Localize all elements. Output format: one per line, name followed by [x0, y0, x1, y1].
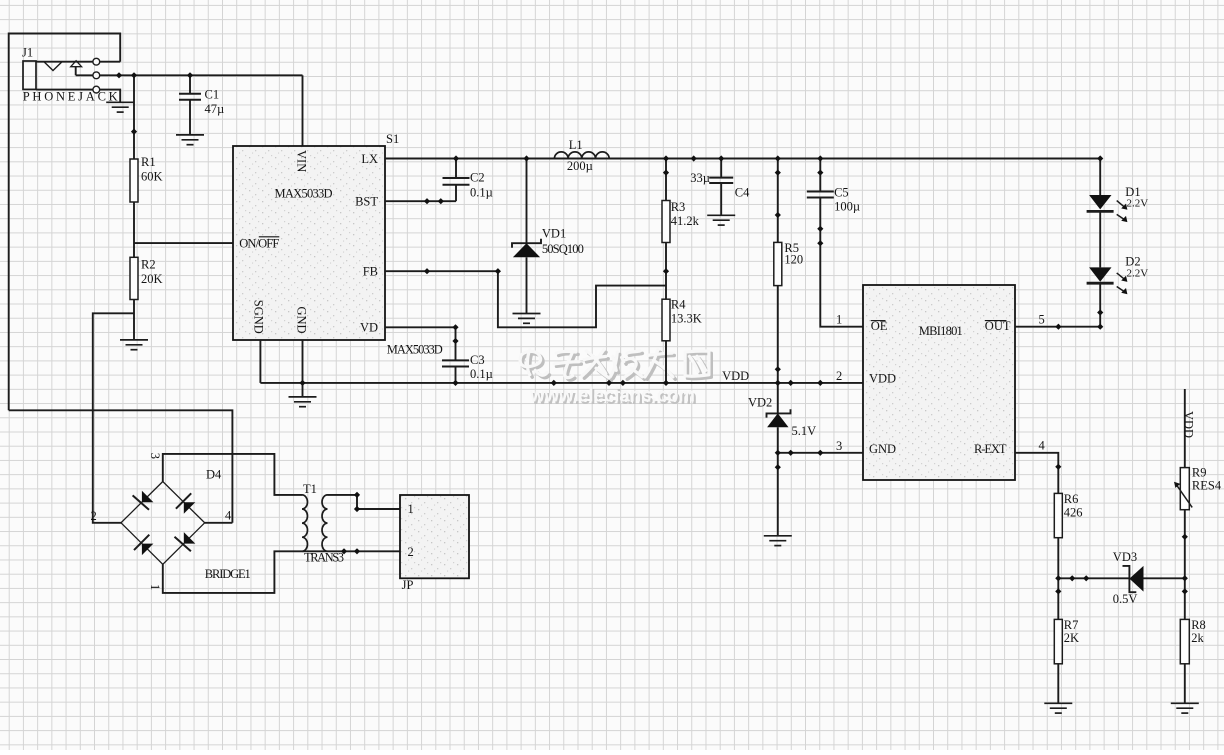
svg-text:120: 120 [784, 253, 803, 267]
svg-text:41.2k: 41.2k [671, 214, 700, 228]
svg-text:MAX5033D: MAX5033D [275, 187, 333, 201]
svg-text:60K: 60K [141, 169, 163, 183]
svg-text:0.5V: 0.5V [1113, 592, 1138, 606]
svg-text:GND: GND [869, 442, 896, 456]
svg-text:C5: C5 [834, 185, 849, 199]
svg-text:JP: JP [402, 578, 414, 592]
svg-text:0.1µ: 0.1µ [470, 186, 493, 200]
svg-text:S1: S1 [386, 132, 399, 146]
svg-text:2: 2 [836, 369, 842, 383]
svg-text:TRANS3: TRANS3 [304, 550, 344, 564]
svg-text:13.3K: 13.3K [671, 312, 702, 326]
svg-text:R9: R9 [1192, 465, 1207, 479]
svg-text:T1: T1 [303, 482, 317, 496]
svg-text:4: 4 [1039, 439, 1046, 453]
svg-text:1: 1 [408, 502, 414, 516]
svg-text:MBI1801: MBI1801 [919, 324, 963, 338]
svg-text:D4: D4 [206, 467, 222, 481]
svg-text:RES4: RES4 [1192, 479, 1222, 493]
svg-text:VIN: VIN [295, 150, 309, 172]
svg-text:VD3: VD3 [1113, 550, 1137, 564]
svg-text:R8: R8 [1191, 618, 1206, 632]
svg-text:C3: C3 [470, 353, 485, 367]
svg-text:C2: C2 [470, 171, 485, 185]
svg-text:C1: C1 [205, 88, 220, 102]
svg-text:R6: R6 [1064, 492, 1079, 506]
svg-text:VD2: VD2 [748, 396, 772, 410]
svg-text:OUT: OUT [985, 319, 1011, 333]
svg-text:R4: R4 [671, 297, 686, 311]
svg-text:3: 3 [836, 439, 842, 453]
svg-text:J1: J1 [22, 46, 33, 60]
svg-text:2: 2 [408, 545, 414, 559]
svg-text:www.elecians.com: www.elecians.com [529, 385, 695, 407]
svg-text:20K: 20K [141, 272, 163, 286]
svg-text:426: 426 [1064, 506, 1083, 520]
svg-text:3: 3 [148, 453, 162, 459]
svg-text:PHONEJACK: PHONEJACK [23, 89, 118, 103]
svg-text:2K: 2K [1064, 631, 1079, 645]
svg-text:ON/OFF: ON/OFF [239, 236, 279, 250]
svg-text:1: 1 [148, 584, 162, 590]
svg-text:2.2V: 2.2V [1127, 198, 1149, 210]
svg-text:100µ: 100µ [834, 200, 860, 214]
svg-text:VDD: VDD [869, 372, 896, 386]
svg-text:5.1V: 5.1V [792, 424, 817, 438]
svg-text:R1: R1 [141, 155, 156, 169]
svg-text:SGND: SGND [252, 300, 266, 334]
svg-text:R3: R3 [671, 200, 686, 214]
svg-text:0.1µ: 0.1µ [470, 367, 493, 381]
svg-text:2.2V: 2.2V [1127, 267, 1149, 279]
svg-text:VD1: VD1 [542, 227, 566, 241]
svg-text:BST: BST [355, 195, 378, 209]
svg-text:4: 4 [225, 509, 232, 523]
svg-text:R7: R7 [1064, 618, 1079, 632]
svg-text:2: 2 [91, 509, 97, 523]
svg-text:C4: C4 [735, 186, 750, 200]
svg-text:1: 1 [836, 312, 842, 326]
svg-text:5: 5 [1039, 312, 1045, 326]
svg-text:FB: FB [363, 265, 378, 279]
svg-text:L1: L1 [569, 138, 583, 152]
svg-text:OE: OE [871, 319, 888, 333]
svg-text:50SQ100: 50SQ100 [542, 242, 584, 256]
svg-text:2k: 2k [1191, 631, 1204, 645]
svg-text:47µ: 47µ [205, 102, 225, 116]
svg-text:R-EXT: R-EXT [974, 442, 1007, 456]
svg-text:MAX5033D: MAX5033D [387, 343, 443, 357]
svg-text:LX: LX [361, 152, 378, 166]
svg-text:GND: GND [295, 307, 309, 334]
svg-text:R2: R2 [141, 258, 156, 272]
svg-text:VD: VD [360, 321, 378, 335]
svg-text:VDD: VDD [1182, 411, 1196, 438]
svg-text:33µ: 33µ [690, 171, 710, 185]
svg-text:200µ: 200µ [567, 159, 593, 173]
svg-text:BRIDGE1: BRIDGE1 [205, 567, 251, 581]
svg-text:VDD: VDD [722, 369, 749, 383]
